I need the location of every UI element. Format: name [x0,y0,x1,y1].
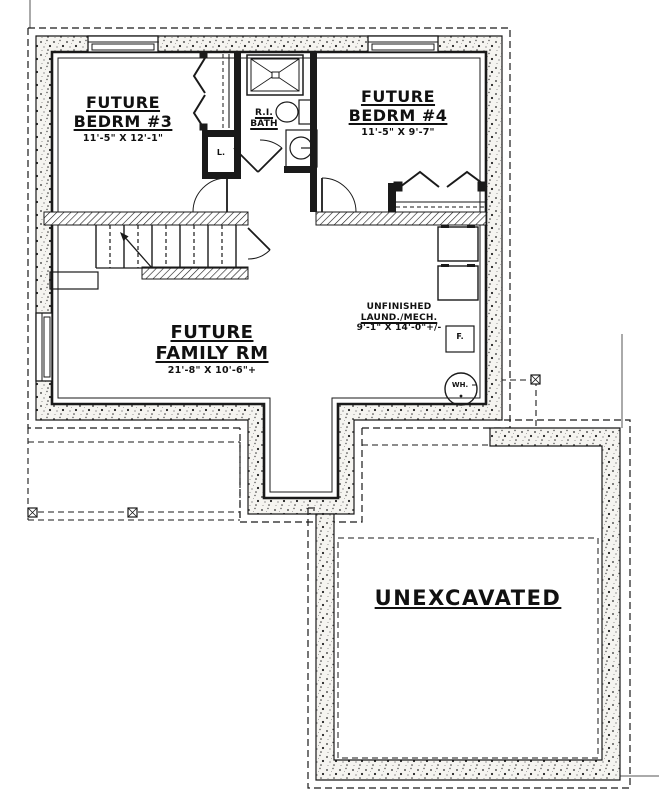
deck-footing-dashed [500,380,536,426]
floor-plan: FUTURE BEDRM #3 11'-5" X 12'-1" FUTURE B… [0,0,659,803]
room-label-laundry: UNFINISHED LAUND./MECH. 9'-1" X 14'-0"+/… [357,302,442,334]
washer-icon [438,225,478,261]
window-family [36,313,52,381]
room-name-line2: LAUND./MECH. [357,313,442,324]
room-dimensions: 9'-1" X 14'-0"+/- [357,323,442,334]
wall-bath-bedrm4 [310,52,317,212]
room-name-line2: BEDRM #4 [349,107,448,126]
room-name-line1: FUTURE [74,94,173,113]
stair-bottom-wall [142,267,248,279]
room-name-line1: UNFINISHED [357,302,442,313]
room-name-line2: BEDRM #3 [74,113,173,132]
room-dimensions: 11'-5" X 9'-7" [349,127,448,138]
door-bedrm3 [193,178,227,212]
stair-landing [50,272,98,289]
room-name-line2: BATH [250,119,278,130]
hall-right-wall [316,212,486,225]
room-name-line1: FUTURE [155,322,268,343]
room-label-bedrm3: FUTURE BEDRM #3 11'-5" X 12'-1" [74,94,173,144]
shower-icon [247,55,303,95]
room-label-unexcavated: UNEXCAVATED [375,586,562,611]
window-bedrm3 [88,36,158,52]
stair-top-wall [44,212,248,225]
bifold-door-icon [400,172,439,187]
room-name-line1: UNEXCAVATED [375,586,562,611]
porch-footing-dashed [28,428,240,520]
door-bedrm4 [322,178,356,212]
room-label-bedrm4: FUTURE BEDRM #4 11'-5" X 9'-7" [349,88,448,138]
laundry-fixtures [438,225,478,405]
wall-linen-left [202,130,208,179]
room-label-family: FUTURE FAMILY RM 21'-8" X 10'-6"+ [155,322,268,377]
room-name-line2: FAMILY RM [155,343,268,364]
wall-closet-bath [234,52,241,178]
bedrm4-closet [394,172,486,207]
deck-post-footing [531,375,540,384]
bedrm3-closet [194,52,229,130]
room-name-line1: FUTURE [349,88,448,107]
furnace-label: F. [456,332,463,341]
room-dimensions: 11'-5" X 12'-1" [74,133,173,144]
room-dimensions: 21'-8" X 10'-6"+ [155,365,268,376]
water-heater-label: WH. [452,381,468,389]
dryer-icon [438,264,478,300]
room-label-bath: R.I. BATH [250,108,278,129]
bifold-door-icon [194,58,205,93]
door-stairs [248,228,270,259]
window-bedrm4 [368,36,438,52]
toilet-icon [276,100,311,124]
linen-closet-label: L. [217,148,225,157]
room-name-line1: R.I. [250,108,278,119]
stair-direction-arrow [120,232,152,268]
doors [193,140,356,259]
door-bath [258,140,282,172]
